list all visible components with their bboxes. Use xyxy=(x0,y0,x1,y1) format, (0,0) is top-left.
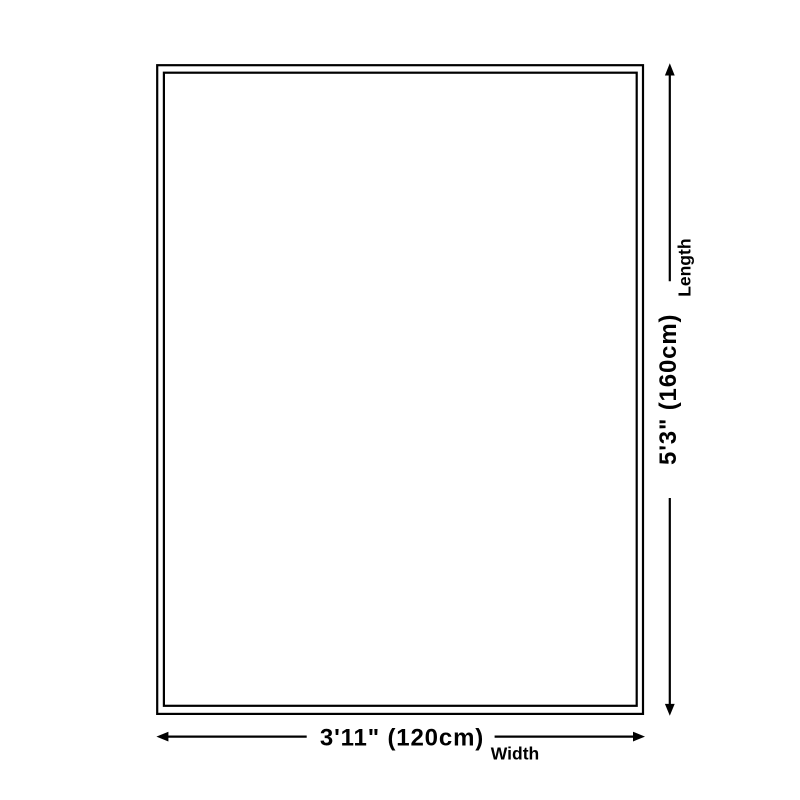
svg-text:3'11" (120cm): 3'11" (120cm) xyxy=(320,724,484,751)
svg-text:5'3" (160cm): 5'3" (160cm) xyxy=(655,314,682,465)
svg-text:Length: Length xyxy=(675,238,695,296)
svg-text:Width: Width xyxy=(491,744,539,764)
